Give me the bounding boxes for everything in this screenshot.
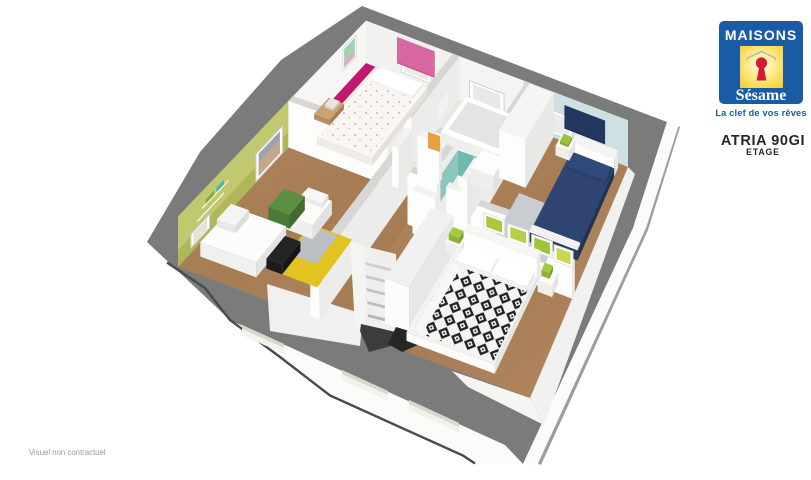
svg-text:Visuel non contractuel: Visuel non contractuel [29,448,106,457]
svg-text:ETAGE: ETAGE [746,147,780,157]
svg-text:MAISONS: MAISONS [725,27,797,43]
svg-text:La clef de vos rêves: La clef de vos rêves [715,108,806,118]
svg-text:Sésame: Sésame [736,87,787,104]
